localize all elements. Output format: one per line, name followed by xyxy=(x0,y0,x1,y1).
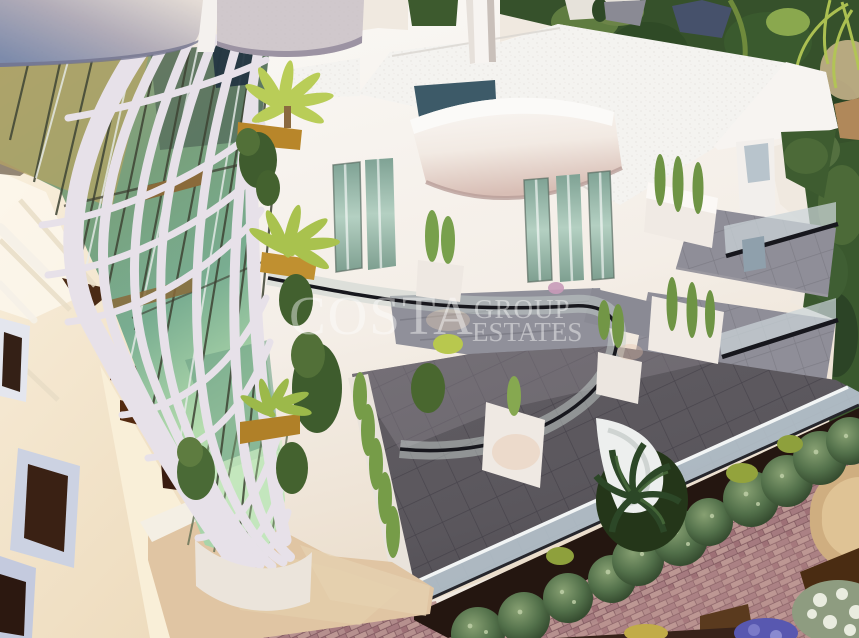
svg-text:ESTATES: ESTATES xyxy=(472,317,582,347)
svg-text:COSTA: COSTA xyxy=(289,285,475,346)
